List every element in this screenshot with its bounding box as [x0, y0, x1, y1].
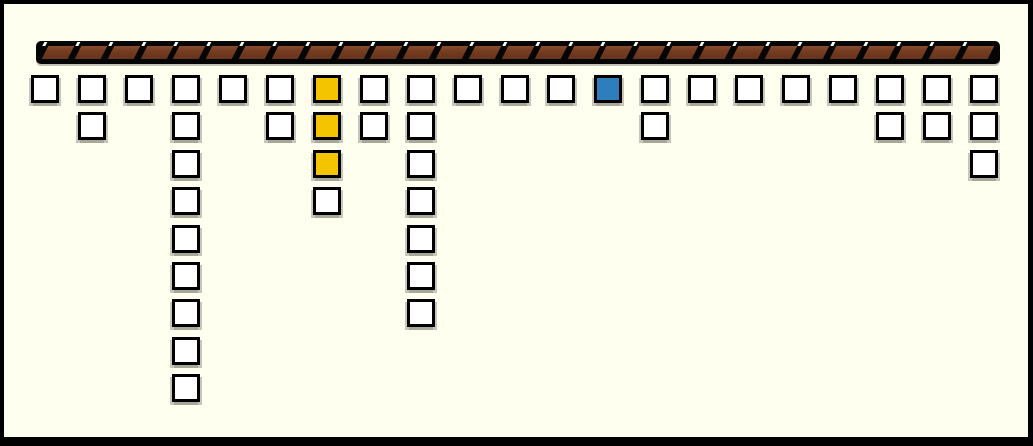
tile-white[interactable]	[735, 75, 763, 103]
rail-segment	[896, 46, 929, 59]
tile-white[interactable]	[172, 225, 200, 253]
tile-white[interactable]	[219, 75, 247, 103]
rail-tick	[633, 42, 638, 46]
tile-white[interactable]	[407, 187, 435, 215]
tile-white[interactable]	[360, 112, 388, 140]
tile-yellow[interactable]	[313, 75, 341, 103]
rail-segment	[140, 46, 173, 59]
tile-white[interactable]	[407, 225, 435, 253]
tile-white[interactable]	[641, 75, 669, 103]
tile-white[interactable]	[970, 112, 998, 140]
tile-white[interactable]	[407, 150, 435, 178]
rail-segment	[403, 46, 436, 59]
tile-white[interactable]	[31, 75, 59, 103]
rail-tick	[305, 42, 310, 46]
tile-white[interactable]	[78, 75, 106, 103]
tile-white[interactable]	[782, 75, 810, 103]
rail-tick	[863, 42, 868, 46]
rail-segment	[830, 46, 863, 59]
rail-segment	[567, 46, 600, 59]
hatched-rail	[36, 41, 1000, 64]
tile-grid	[31, 75, 1011, 415]
tile-white[interactable]	[829, 75, 857, 103]
tile-white[interactable]	[970, 75, 998, 103]
rail-segment	[863, 46, 896, 59]
rail-segment	[304, 46, 337, 59]
rail-tick	[469, 42, 474, 46]
rail-tick	[42, 42, 47, 46]
rail-segment	[469, 46, 502, 59]
rail-tick	[699, 42, 704, 46]
rail-segment	[764, 46, 797, 59]
tile-white[interactable]	[970, 150, 998, 178]
rail-tick	[502, 42, 507, 46]
rail-tick	[666, 42, 671, 46]
rail-segment	[633, 46, 666, 59]
rail-segment	[928, 46, 961, 59]
rail-segment	[272, 46, 305, 59]
rail-segment	[699, 46, 732, 59]
board-canvas	[4, 4, 1028, 437]
tile-white[interactable]	[923, 112, 951, 140]
rail-tick	[272, 42, 277, 46]
rail-segment	[75, 46, 108, 59]
rail-segment	[731, 46, 764, 59]
tile-white[interactable]	[78, 112, 106, 140]
rail-tick	[436, 42, 441, 46]
rail-segment	[42, 46, 75, 59]
rail-segment	[206, 46, 239, 59]
tile-white[interactable]	[923, 75, 951, 103]
tile-yellow[interactable]	[313, 150, 341, 178]
rail-segment	[107, 46, 140, 59]
board-frame	[0, 0, 1033, 446]
rail-tick	[798, 42, 803, 46]
tile-white[interactable]	[407, 112, 435, 140]
rail-tick	[896, 42, 901, 46]
rail-tick	[239, 42, 244, 46]
tile-white[interactable]	[688, 75, 716, 103]
rail-tick	[75, 42, 80, 46]
rail-segment	[502, 46, 535, 59]
tile-white[interactable]	[407, 75, 435, 103]
rail-segment	[436, 46, 469, 59]
tile-white[interactable]	[876, 112, 904, 140]
tile-white[interactable]	[360, 75, 388, 103]
tile-white[interactable]	[172, 374, 200, 402]
rail-tick	[338, 42, 343, 46]
rail-tick	[929, 42, 934, 46]
rail-tick	[601, 42, 606, 46]
tile-white[interactable]	[266, 112, 294, 140]
rail-segment	[337, 46, 370, 59]
tile-white[interactable]	[172, 112, 200, 140]
tile-white[interactable]	[266, 75, 294, 103]
tile-white[interactable]	[172, 75, 200, 103]
tile-white[interactable]	[454, 75, 482, 103]
tile-white[interactable]	[172, 337, 200, 365]
rail-segment	[797, 46, 830, 59]
tile-white[interactable]	[172, 150, 200, 178]
rail-tick	[765, 42, 770, 46]
tile-white[interactable]	[125, 75, 153, 103]
tile-white[interactable]	[172, 262, 200, 290]
rail-tick	[568, 42, 573, 46]
tile-white[interactable]	[313, 187, 341, 215]
rail-tick	[108, 42, 113, 46]
rail-segment	[173, 46, 206, 59]
tile-white[interactable]	[876, 75, 904, 103]
tile-white[interactable]	[172, 299, 200, 327]
tile-white[interactable]	[407, 299, 435, 327]
rail-segment	[666, 46, 699, 59]
rail-tick	[141, 42, 146, 46]
rail-tick	[174, 42, 179, 46]
rail-tick	[732, 42, 737, 46]
rail-segment	[600, 46, 633, 59]
rail-segment	[961, 46, 994, 59]
tile-yellow[interactable]	[313, 112, 341, 140]
rail-segment	[239, 46, 272, 59]
rail-tick	[371, 42, 376, 46]
rail-tick	[962, 42, 967, 46]
rail-tick	[831, 42, 836, 46]
rail-tick	[404, 42, 409, 46]
rail-segment	[370, 46, 403, 59]
rail-tick	[535, 42, 540, 46]
tile-white[interactable]	[641, 112, 669, 140]
tile-blue[interactable]	[594, 75, 622, 103]
tile-white[interactable]	[407, 262, 435, 290]
rail-tick	[207, 42, 212, 46]
tile-white[interactable]	[172, 187, 200, 215]
tile-white[interactable]	[501, 75, 529, 103]
rail-segment	[534, 46, 567, 59]
tile-white[interactable]	[547, 75, 575, 103]
